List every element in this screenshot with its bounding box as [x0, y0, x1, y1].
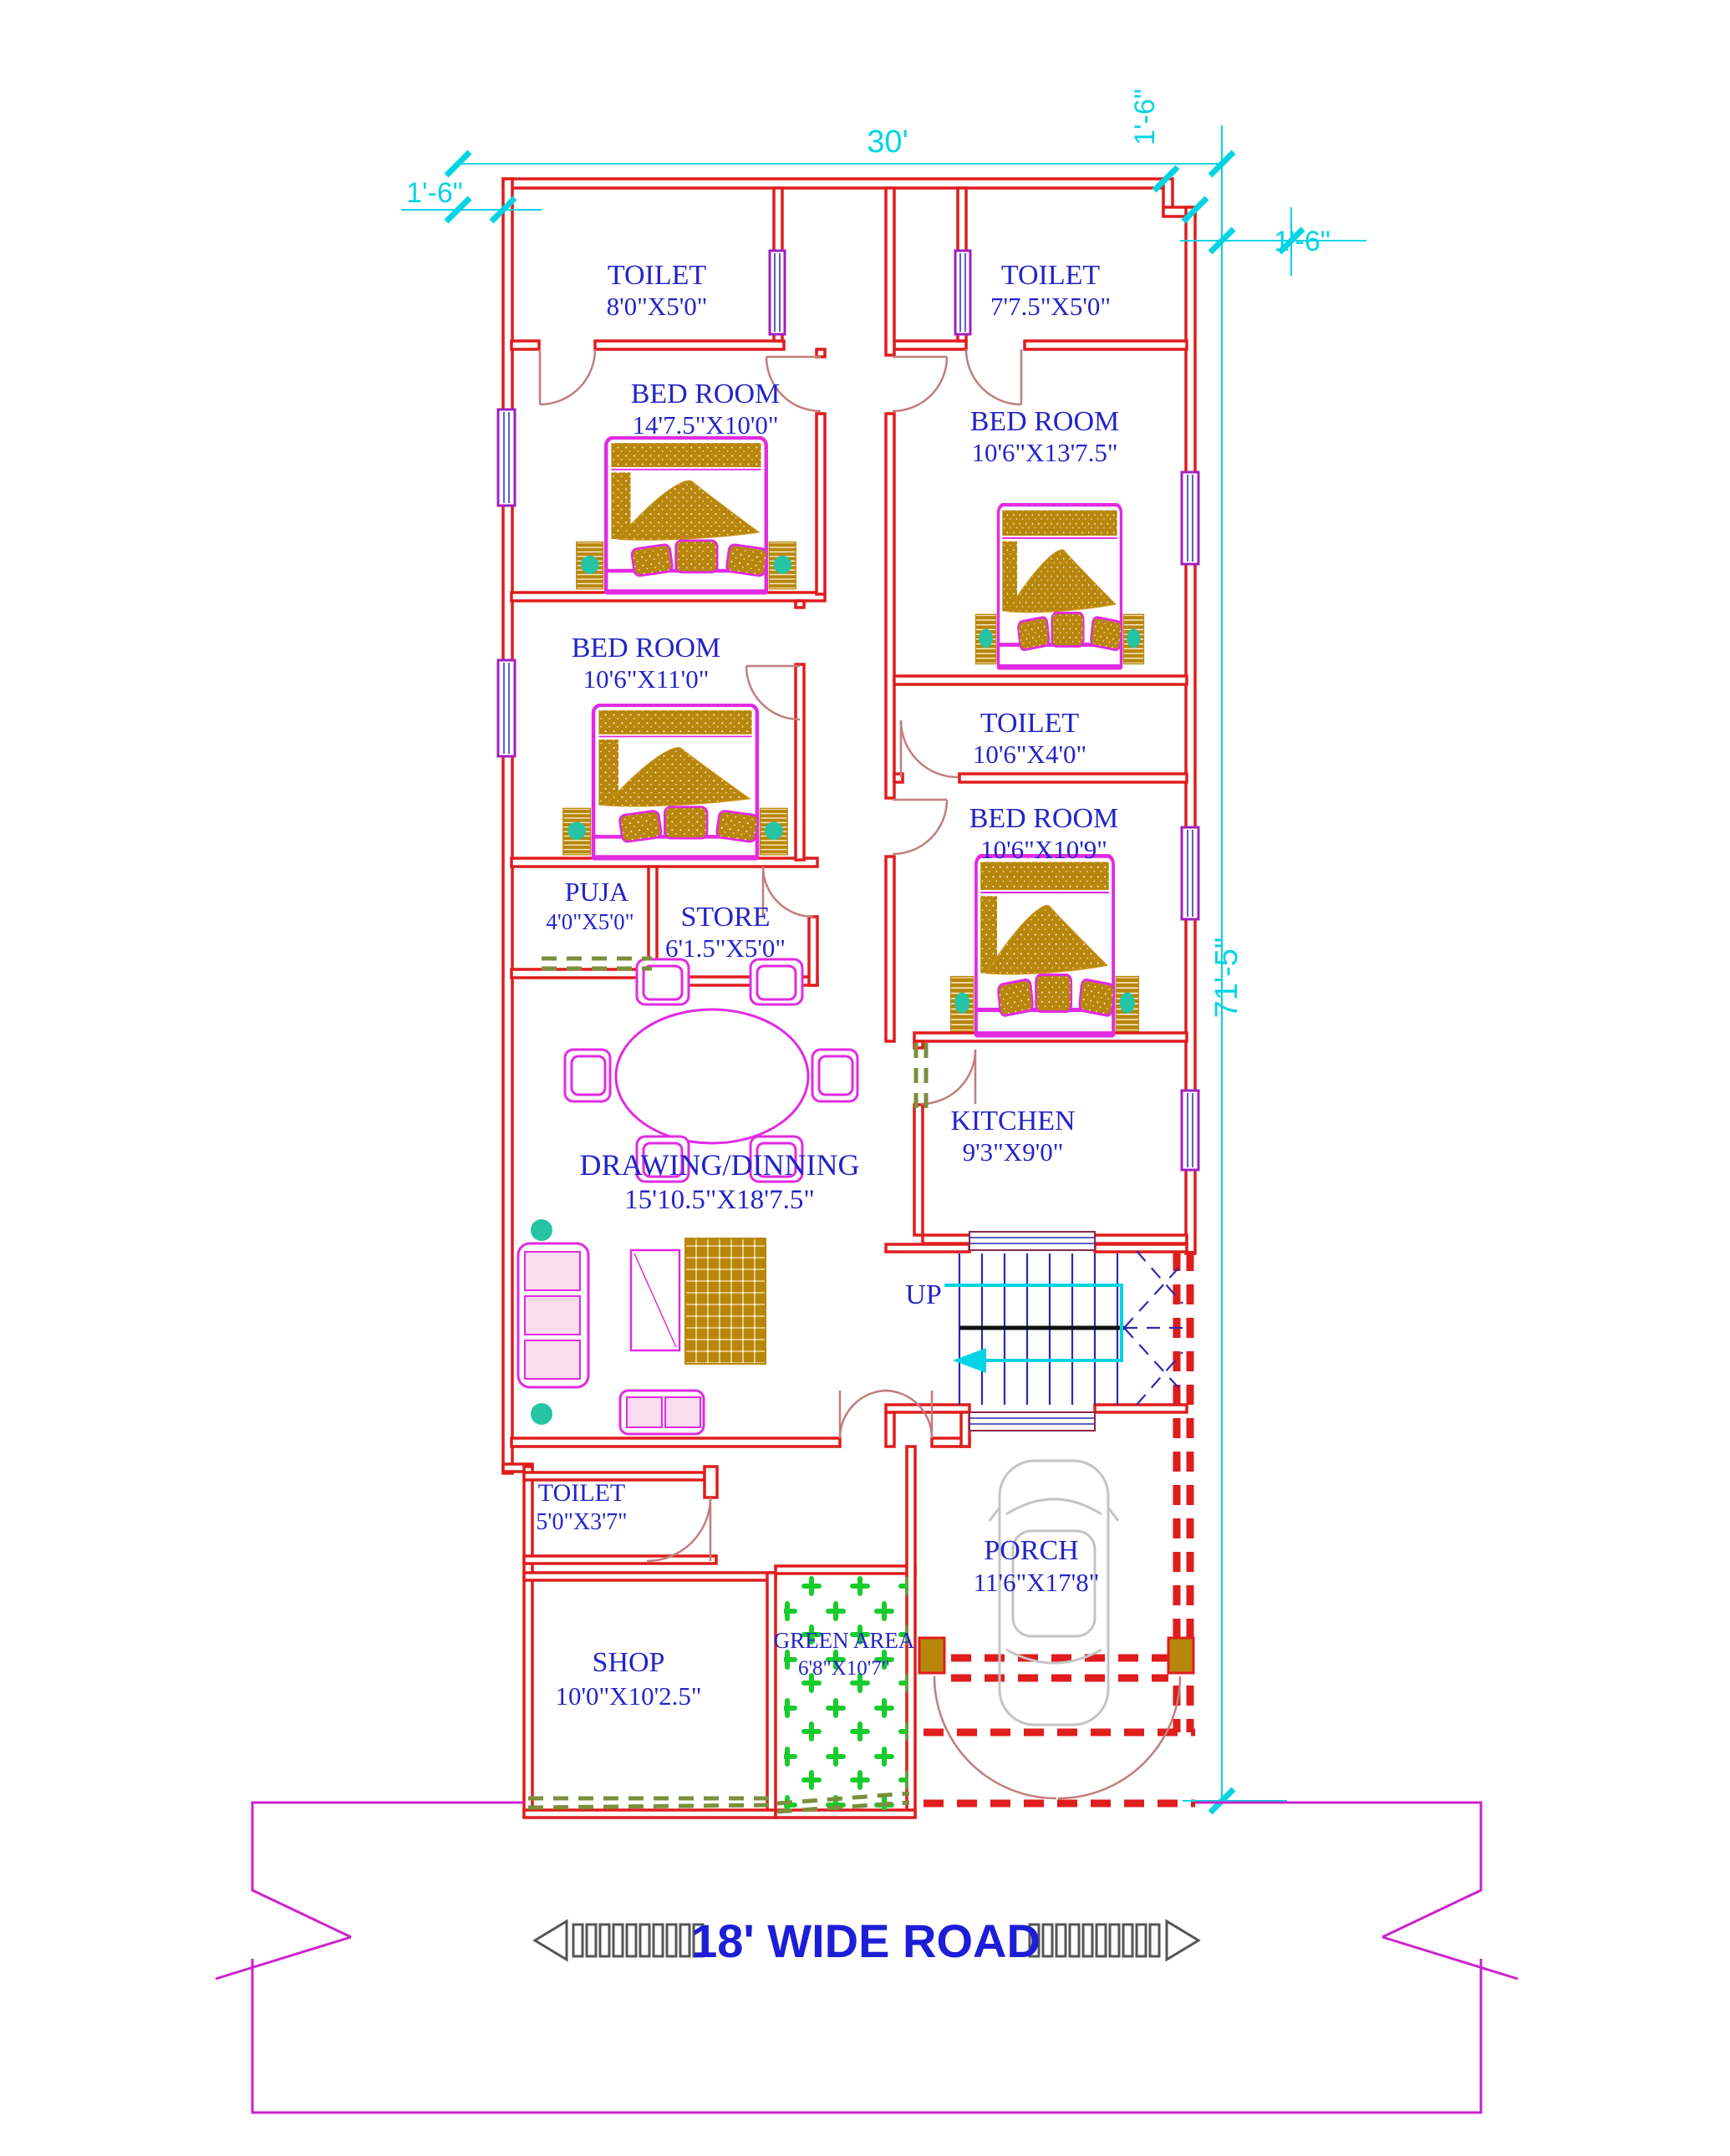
size-toilet-mid-right: 10'6"X4'0" — [973, 740, 1086, 769]
bed-mid-right — [951, 856, 1139, 1035]
label-puja: PUJA — [565, 877, 628, 907]
size-bedroom-top-left: 14'7.5"X10'0" — [632, 410, 778, 440]
label-porch: PORCH — [984, 1535, 1078, 1566]
label-stairs-up: UP — [905, 1279, 941, 1310]
label-store: STORE — [680, 902, 770, 933]
label-bedroom-mid-left: BED ROOM — [572, 633, 721, 664]
dim-right-offset: 1'-6" — [1274, 226, 1331, 257]
label-drawing-dining: DRAWING/DINNING — [579, 1148, 859, 1182]
dim-top-width: 30' — [867, 125, 908, 160]
size-kitchen: 9'3"X9'0" — [963, 1137, 1064, 1167]
size-puja: 4'0"X5'0" — [546, 909, 633, 934]
label-toilet-mid-right: TOILET — [980, 708, 1080, 739]
size-store: 6'1.5"X5'0" — [665, 933, 786, 963]
label-toilet-top-right: TOILET — [1001, 260, 1101, 291]
green-area-pattern — [784, 1574, 908, 1810]
bed-mid-left — [563, 705, 787, 858]
sofa-set — [518, 1219, 766, 1434]
label-green-area: GREEN AREA — [774, 1628, 915, 1653]
size-bedroom-mid-left: 10'6"X11'0" — [583, 664, 710, 694]
size-porch: 11'6"X17'8" — [974, 1568, 1100, 1597]
size-drawing-dining: 15'10.5"X18'7.5" — [624, 1185, 815, 1215]
size-toilet-top-left: 8'0"X5'0" — [607, 292, 708, 321]
size-shop: 10'0"X10'2.5" — [555, 1681, 701, 1711]
dim-top-right-offset: 1'-6" — [1129, 89, 1161, 145]
floor-plan-page: 30' 1'-6" 1'-6" 1'-6" 71'-5" TOILET 8'0"… — [0, 0, 1730, 2156]
label-bedroom-top-right: BED ROOM — [970, 406, 1120, 437]
label-toilet-top-left: TOILET — [608, 260, 707, 291]
porch-column-right — [1168, 1638, 1193, 1673]
dashed-walls — [924, 1251, 1195, 1803]
label-bedroom-top-left: BED ROOM — [631, 379, 781, 409]
size-green-area: 6'8"X10'7" — [798, 1657, 890, 1680]
porch-column-left — [919, 1638, 944, 1673]
label-kitchen: KITCHEN — [950, 1106, 1075, 1136]
size-bedroom-mid-right: 10'6"X10'9" — [980, 835, 1107, 864]
bed-top-right — [975, 505, 1143, 667]
floor-plan-svg: 30' 1'-6" 1'-6" 1'-6" 71'-5" TOILET 8'0"… — [0, 0, 1730, 2156]
size-bedroom-top-right: 10'6"X13'7.5" — [971, 438, 1117, 467]
dim-top-left-offset: 1'-6" — [406, 177, 463, 209]
dim-right-height: 71'-5" — [1209, 938, 1244, 1019]
stairs-up-arrowhead — [953, 1348, 986, 1373]
road-label: 18' WIDE ROAD — [691, 1914, 1041, 1967]
size-toilet-top-right: 7'7.5"X5'0" — [990, 292, 1111, 321]
size-toilet-bottom: 5'0"X3'7" — [536, 1509, 627, 1535]
label-toilet-bottom: TOILET — [538, 1479, 625, 1507]
label-shop: SHOP — [593, 1647, 665, 1678]
bed-top-left — [577, 438, 796, 592]
label-bedroom-mid-right: BED ROOM — [969, 803, 1119, 834]
staircase — [944, 1232, 1187, 1431]
